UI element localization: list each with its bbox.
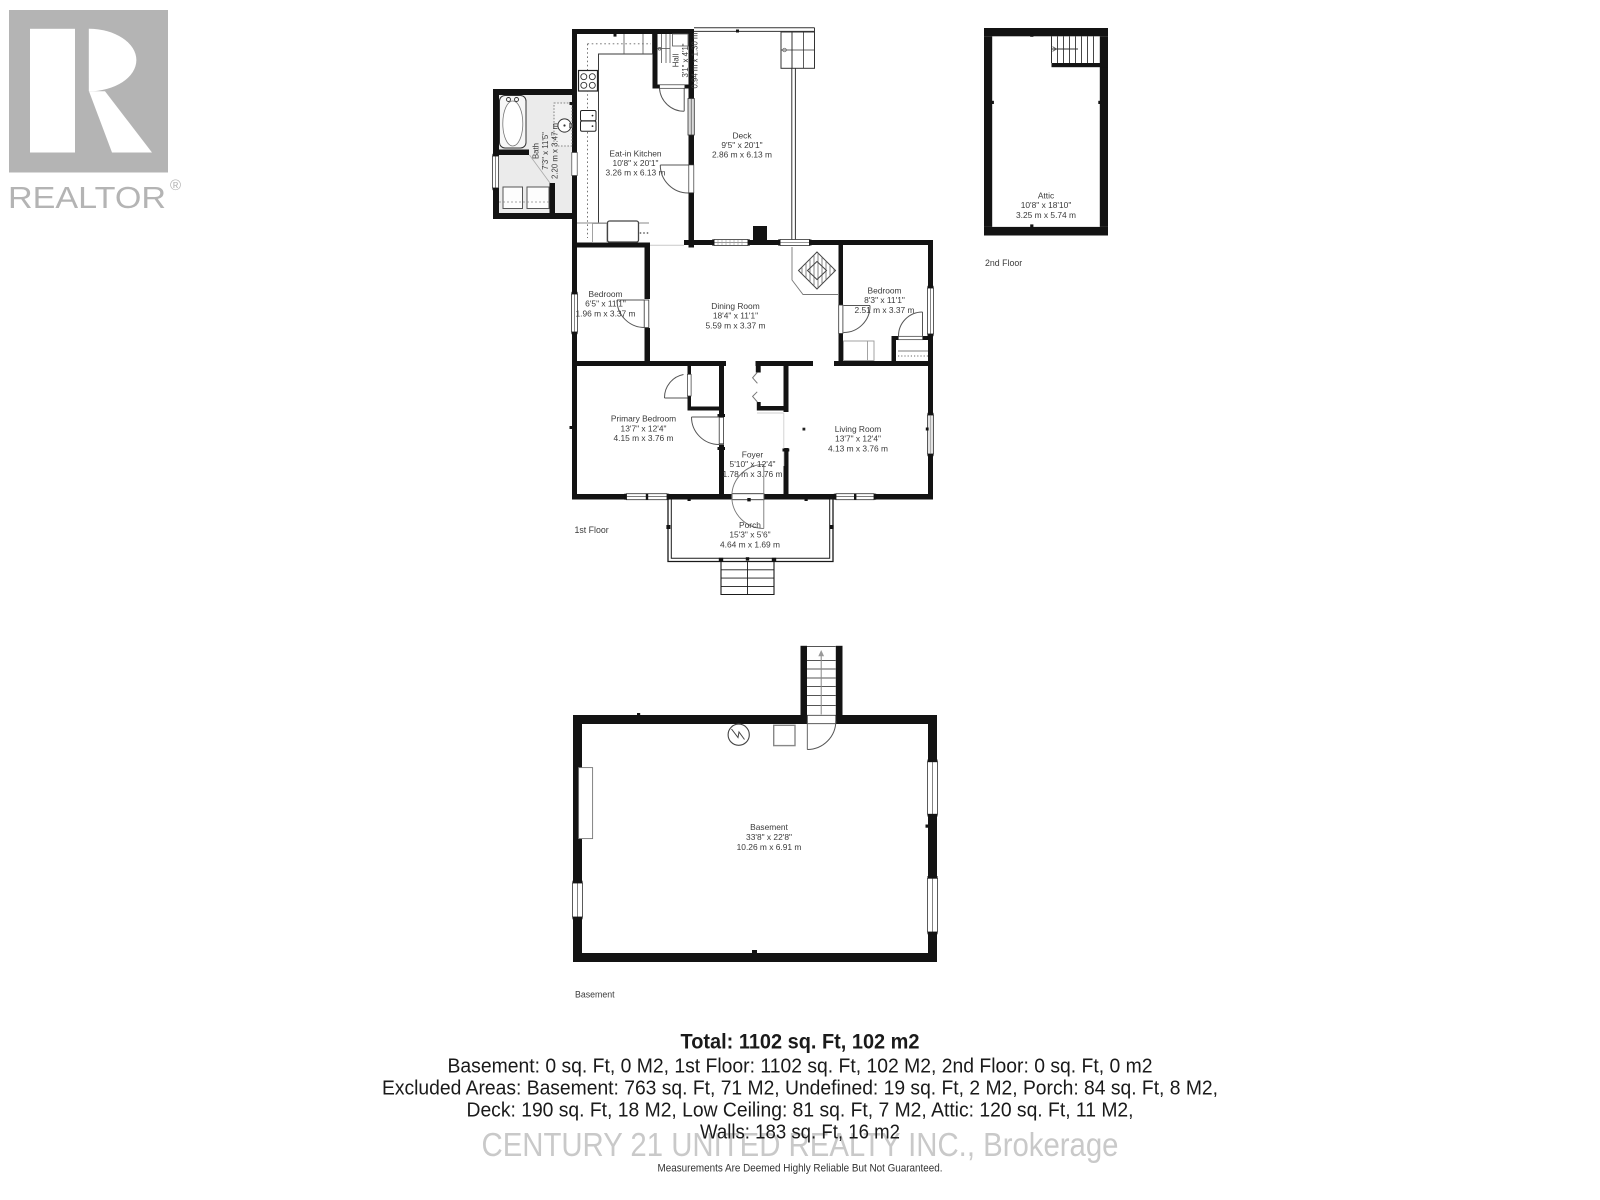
svg-text:Porch: Porch xyxy=(739,520,761,530)
svg-text:5'10" x 12'4": 5'10" x 12'4" xyxy=(730,459,776,469)
svg-text:1.96 m x 3.37 m: 1.96 m x 3.37 m xyxy=(575,308,635,318)
svg-text:6'5" x 11'1": 6'5" x 11'1" xyxy=(585,299,626,309)
svg-text:18'4" x 11'1": 18'4" x 11'1" xyxy=(713,311,758,321)
svg-text:Primary Bedroom: Primary Bedroom xyxy=(611,414,676,424)
svg-text:Attic: Attic xyxy=(1038,191,1054,201)
svg-text:2nd Floor: 2nd Floor xyxy=(985,258,1022,268)
svg-text:9'5" x 20'1": 9'5" x 20'1" xyxy=(721,140,762,150)
svg-text:Foyer: Foyer xyxy=(742,450,764,460)
svg-text:Dining Room: Dining Room xyxy=(711,301,759,311)
svg-text:REALTOR: REALTOR xyxy=(8,181,166,215)
svg-text:Basement: Basement xyxy=(750,822,788,832)
svg-text:1st Floor: 1st Floor xyxy=(575,525,609,535)
svg-text:1.78 m x 3.76 m: 1.78 m x 3.76 m xyxy=(722,469,782,479)
svg-text:®: ® xyxy=(170,177,181,194)
svg-text:Hall: Hall xyxy=(671,54,680,68)
svg-text:Total: 1102 sq. Ft, 102 m2: Total: 1102 sq. Ft, 102 m2 xyxy=(681,1031,920,1054)
svg-text:Walls: 183 sq. Ft, 16 m2: Walls: 183 sq. Ft, 16 m2 xyxy=(700,1122,900,1144)
svg-text:Basement: Basement xyxy=(575,990,615,1000)
svg-text:10.26 m x 6.91 m: 10.26 m x 6.91 m xyxy=(737,842,802,852)
svg-text:Bath: Bath xyxy=(531,143,540,159)
svg-text:Bedroom: Bedroom xyxy=(868,286,902,296)
svg-text:4.64 m x 1.69 m: 4.64 m x 1.69 m xyxy=(720,539,780,549)
svg-text:Basement: 0 sq. Ft, 0 M2, 1st: Basement: 0 sq. Ft, 0 M2, 1st Floor: 110… xyxy=(448,1056,1153,1078)
svg-text:13'7" x 12'4": 13'7" x 12'4" xyxy=(835,434,881,444)
svg-text:4.15 m x 3.76 m: 4.15 m x 3.76 m xyxy=(613,433,673,443)
svg-text:2.20 m x 3.47 m: 2.20 m x 3.47 m xyxy=(551,123,560,179)
svg-text:4.13 m x 3.76 m: 4.13 m x 3.76 m xyxy=(828,443,888,453)
svg-text:Deck: 190 sq. Ft, 18 M2, Low C: Deck: 190 sq. Ft, 18 M2, Low Ceiling: 81… xyxy=(467,1100,1134,1122)
svg-text:13'7" x 12'4": 13'7" x 12'4" xyxy=(621,423,667,433)
svg-text:10'8" x 18'10": 10'8" x 18'10" xyxy=(1021,200,1072,210)
svg-text:15'3" x 5'6": 15'3" x 5'6" xyxy=(729,530,770,540)
svg-text:Measurements Are Deemed Highly: Measurements Are Deemed Highly Reliable … xyxy=(658,1163,943,1175)
svg-text:7'3" x 11'5": 7'3" x 11'5" xyxy=(541,132,550,170)
svg-text:3.25 m x 5.74 m: 3.25 m x 5.74 m xyxy=(1016,210,1076,220)
svg-text:Eat-in Kitchen: Eat-in Kitchen xyxy=(609,149,661,159)
svg-text:Deck: Deck xyxy=(732,131,752,141)
svg-text:2.51 m x 3.37 m: 2.51 m x 3.37 m xyxy=(854,305,914,315)
svg-text:3.26 m x 6.13 m: 3.26 m x 6.13 m xyxy=(605,168,665,178)
svg-text:Living Room: Living Room xyxy=(835,424,882,434)
svg-text:2.86 m x 6.13 m: 2.86 m x 6.13 m xyxy=(712,150,772,160)
svg-text:5.59 m x 3.37 m: 5.59 m x 3.37 m xyxy=(705,320,765,330)
svg-text:Excluded Areas: Basement: 763: Excluded Areas: Basement: 763 sq. Ft, 71… xyxy=(382,1078,1218,1100)
svg-text:3'1" x 4'1": 3'1" x 4'1" xyxy=(681,43,690,77)
svg-text:10'8" x 20'1": 10'8" x 20'1" xyxy=(613,158,659,168)
svg-text:8'3" x 11'1": 8'3" x 11'1" xyxy=(864,295,905,305)
svg-text:0.94 m x 1.30 m: 0.94 m x 1.30 m xyxy=(691,33,700,89)
svg-text:Bedroom: Bedroom xyxy=(589,289,623,299)
svg-text:33'8" x 22'8": 33'8" x 22'8" xyxy=(746,832,792,842)
